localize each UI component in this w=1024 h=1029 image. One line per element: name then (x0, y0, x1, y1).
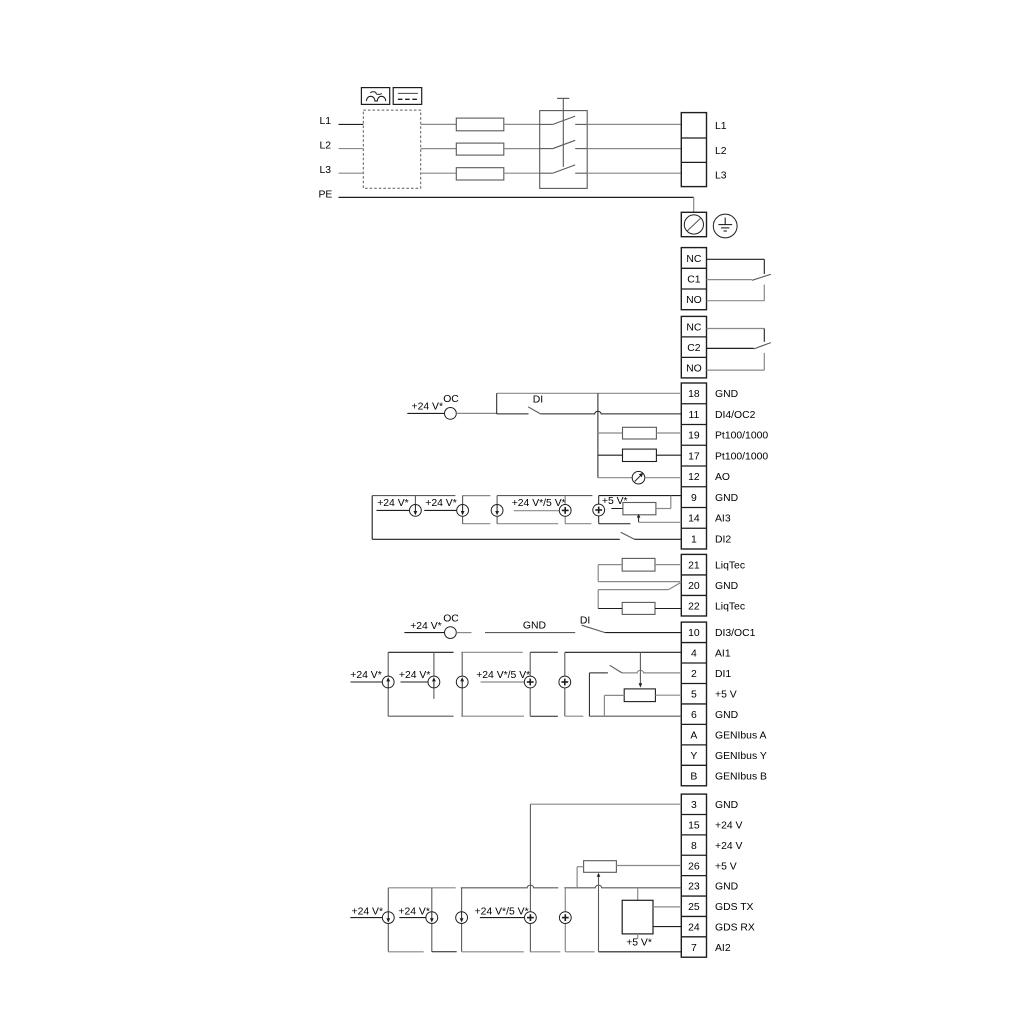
svg-text:GND: GND (715, 882, 738, 893)
svg-text:+24 V: +24 V (715, 820, 743, 831)
svg-text:PE: PE (319, 189, 333, 200)
svg-text:11: 11 (689, 410, 700, 421)
svg-text:Pt100/1000: Pt100/1000 (715, 431, 768, 442)
svg-text:GND: GND (715, 710, 738, 721)
svg-text:NO: NO (686, 295, 702, 306)
svg-text:GND: GND (715, 800, 738, 811)
svg-text:14: 14 (688, 514, 700, 525)
svg-text:GND: GND (715, 389, 738, 400)
svg-text:+24 V*: +24 V* (352, 906, 384, 917)
svg-text:AI3: AI3 (715, 514, 731, 525)
svg-text:OC: OC (443, 394, 459, 405)
svg-text:GDS RX: GDS RX (715, 922, 755, 933)
svg-text:L2: L2 (715, 146, 727, 157)
svg-text:L3: L3 (320, 165, 332, 176)
svg-text:L2: L2 (320, 141, 332, 152)
svg-text:GENIbus Y: GENIbus Y (715, 751, 767, 762)
svg-text:6: 6 (691, 710, 697, 721)
svg-text:+24 V*/5 V*: +24 V*/5 V* (512, 498, 566, 509)
svg-text:+5 V*: +5 V* (626, 938, 652, 949)
svg-text:9: 9 (691, 493, 697, 504)
svg-text:GND: GND (523, 620, 546, 631)
svg-text:DI1: DI1 (715, 669, 731, 680)
svg-text:+24 V*/5 V*: +24 V*/5 V* (476, 670, 530, 681)
svg-text:L1: L1 (715, 121, 727, 132)
svg-text:19: 19 (688, 431, 700, 442)
svg-text:18: 18 (688, 389, 700, 400)
svg-text:L1: L1 (320, 116, 332, 127)
svg-text:15: 15 (688, 820, 700, 831)
svg-text:+24 V*: +24 V* (425, 498, 457, 509)
svg-text:12: 12 (688, 472, 700, 483)
svg-text:10: 10 (688, 628, 700, 639)
svg-text:DI2: DI2 (715, 534, 731, 545)
svg-text:26: 26 (688, 861, 700, 872)
svg-text:DI: DI (533, 394, 543, 405)
svg-text:AO: AO (715, 472, 730, 483)
svg-text:2: 2 (691, 669, 697, 680)
svg-text:DI: DI (580, 615, 590, 626)
svg-text:23: 23 (688, 882, 700, 893)
svg-text:+5 V: +5 V (715, 690, 737, 701)
svg-text:GENIbus A: GENIbus A (715, 730, 766, 741)
svg-text:+24 V*: +24 V* (410, 621, 442, 632)
svg-text:7: 7 (691, 943, 697, 954)
svg-text:24: 24 (688, 922, 700, 933)
svg-text:21: 21 (688, 560, 700, 571)
svg-text:B: B (690, 771, 697, 782)
svg-text:LiqTec: LiqTec (715, 602, 745, 613)
svg-text:+24 V*: +24 V* (398, 906, 430, 917)
svg-text:8: 8 (691, 841, 697, 852)
svg-text:5: 5 (691, 690, 697, 701)
svg-text:A: A (690, 730, 697, 741)
svg-text:+24 V*: +24 V* (350, 670, 382, 681)
svg-text:AI1: AI1 (715, 649, 731, 660)
svg-text:Y: Y (690, 751, 697, 762)
svg-text:NO: NO (686, 363, 702, 374)
svg-text:Pt100/1000: Pt100/1000 (715, 451, 768, 462)
svg-text:+24 V*/5 V*: +24 V*/5 V* (475, 906, 529, 917)
svg-text:GND: GND (715, 581, 738, 592)
svg-text:3: 3 (691, 800, 697, 811)
svg-text:+5 V*: +5 V* (602, 496, 628, 507)
svg-text:1: 1 (691, 534, 697, 545)
svg-text:+24 V*: +24 V* (377, 498, 409, 509)
svg-text:C1: C1 (687, 274, 701, 285)
svg-text:22: 22 (688, 602, 700, 613)
svg-text:4: 4 (691, 649, 697, 660)
svg-text:17: 17 (688, 451, 700, 462)
svg-text:OC: OC (443, 613, 459, 624)
svg-text:25: 25 (688, 902, 700, 913)
svg-text:L3: L3 (715, 170, 727, 181)
svg-text:+24 V: +24 V (715, 841, 743, 852)
svg-text:DI3/OC1: DI3/OC1 (715, 628, 756, 639)
svg-text:LiqTec: LiqTec (715, 560, 745, 571)
svg-text:GND: GND (715, 493, 738, 504)
svg-text:AI2: AI2 (715, 943, 731, 954)
svg-text:GENIbus B: GENIbus B (715, 771, 767, 782)
svg-text:C2: C2 (687, 343, 701, 354)
svg-text:20: 20 (688, 581, 700, 592)
svg-text:+24 V*: +24 V* (399, 670, 431, 681)
svg-text:DI4/OC2: DI4/OC2 (715, 410, 756, 421)
svg-text:+24 V*: +24 V* (412, 402, 444, 413)
svg-text:NC: NC (686, 322, 702, 333)
svg-text:GDS TX: GDS TX (715, 902, 754, 913)
svg-text:+5 V: +5 V (715, 861, 737, 872)
svg-text:NC: NC (686, 254, 702, 265)
